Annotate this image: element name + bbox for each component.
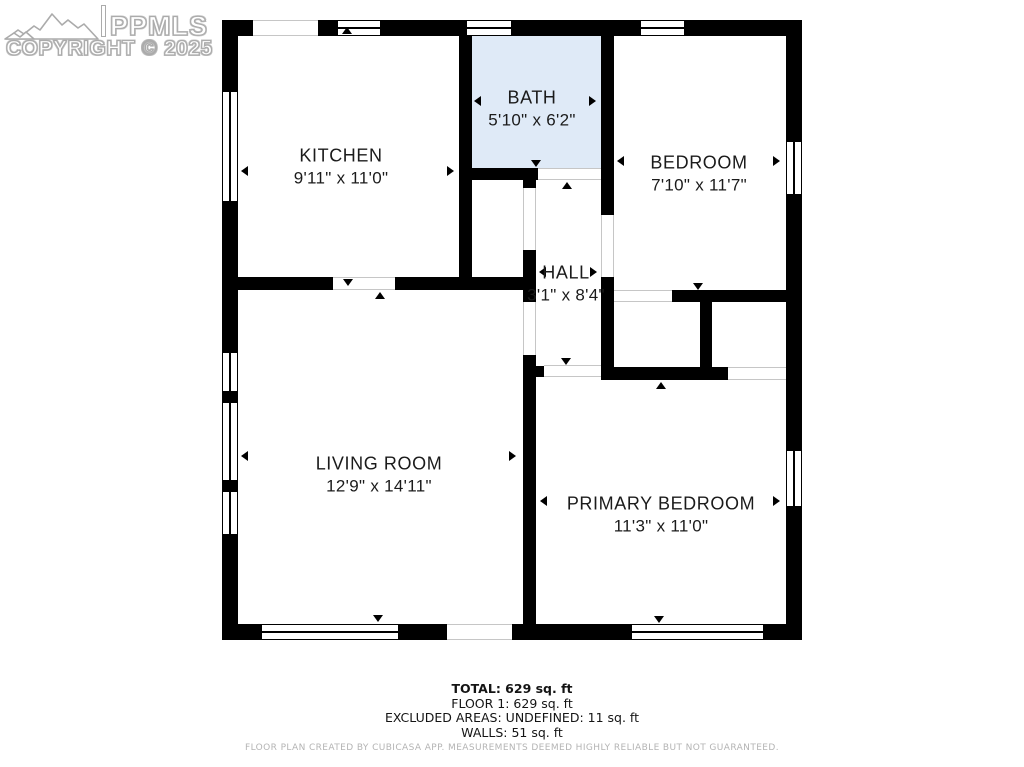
room-dimensions: 11'3" x 11'0" bbox=[567, 517, 755, 537]
door-opening bbox=[253, 20, 318, 36]
wall-segment bbox=[601, 36, 614, 215]
measure-arrow-up bbox=[342, 27, 352, 34]
ppmls-watermark: PPMLS COPYRIGHT © 2025 bbox=[4, 4, 244, 64]
window bbox=[786, 138, 802, 198]
area-summary: TOTAL: 629 sq. ft FLOOR 1: 629 sq. ft EX… bbox=[0, 682, 1024, 740]
room-dimensions: 5'10" x 6'2" bbox=[488, 111, 575, 131]
measure-arrow-left bbox=[241, 451, 248, 461]
wall-segment bbox=[672, 290, 786, 302]
room-label-hall: HALL 3'1" x 8'4" bbox=[527, 263, 605, 306]
room-label-kitchen: KITCHEN 9'11" x 11'0" bbox=[294, 146, 389, 189]
measure-arrow-up bbox=[562, 182, 572, 189]
window bbox=[637, 20, 688, 36]
mountain-range-icon bbox=[4, 6, 100, 40]
measure-arrow-right bbox=[773, 156, 780, 166]
room-name: BATH bbox=[488, 88, 575, 109]
wall-segment bbox=[536, 366, 544, 377]
window-mullion bbox=[222, 480, 238, 492]
room-name: PRIMARY BEDROOM bbox=[567, 494, 755, 515]
window-mullion bbox=[222, 391, 238, 403]
wall-segment bbox=[688, 20, 802, 36]
wall-segment bbox=[395, 277, 536, 290]
wall-segment bbox=[238, 277, 333, 290]
room-dimensions: 9'11" x 11'0" bbox=[294, 169, 389, 189]
excluded-areas: EXCLUDED AREAS: UNDEFINED: 11 sq. ft bbox=[0, 711, 1024, 726]
measure-arrow-down bbox=[561, 358, 571, 365]
room-label-bedroom: BEDROOM 7'10" x 11'7" bbox=[650, 153, 747, 196]
measure-arrow-right bbox=[773, 496, 780, 506]
door-opening bbox=[523, 188, 536, 250]
disclaimer-text: FLOOR PLAN CREATED BY CUBICASA APP. MEAS… bbox=[0, 743, 1024, 753]
wall-segment bbox=[512, 624, 628, 640]
window bbox=[222, 349, 238, 538]
floor1-area: FLOOR 1: 629 sq. ft bbox=[0, 697, 1024, 712]
door-opening bbox=[538, 168, 601, 180]
room-dimensions: 3'1" x 8'4" bbox=[527, 286, 605, 306]
measure-arrow-down bbox=[343, 279, 353, 286]
wall-segment bbox=[601, 367, 728, 380]
measure-arrow-left bbox=[617, 156, 624, 166]
room-dimensions: 7'10" x 11'7" bbox=[650, 176, 747, 196]
window bbox=[628, 624, 767, 640]
measure-arrow-right bbox=[589, 96, 596, 106]
wall-segment bbox=[222, 624, 258, 640]
measure-arrow-down bbox=[531, 160, 541, 167]
measure-arrow-up bbox=[695, 27, 705, 34]
room-label-bath: BATH 5'10" x 6'2" bbox=[488, 88, 575, 131]
measure-arrow-up bbox=[375, 292, 385, 299]
measure-arrow-up bbox=[531, 27, 541, 34]
wall-segment bbox=[384, 20, 463, 36]
room-label-living-room: LIVING ROOM 12'9" x 14'11" bbox=[316, 454, 443, 497]
copyright-text: COPYRIGHT © 2025 bbox=[6, 37, 213, 61]
measure-arrow-left bbox=[241, 166, 248, 176]
door-opening bbox=[544, 365, 601, 377]
measure-arrow-left bbox=[540, 496, 547, 506]
room-name: KITCHEN bbox=[294, 146, 389, 167]
measure-arrow-up bbox=[656, 382, 666, 389]
floor-plan: KITCHEN 9'11" x 11'0" BATH 5'10" x 6'2" … bbox=[0, 0, 1024, 767]
window bbox=[463, 20, 515, 36]
door-opening bbox=[523, 302, 536, 355]
total-area: TOTAL: 629 sq. ft bbox=[0, 682, 1024, 697]
room-name: BEDROOM bbox=[650, 153, 747, 174]
measure-arrow-down bbox=[373, 615, 383, 622]
door-opening bbox=[447, 624, 512, 640]
wall-segment bbox=[523, 355, 536, 624]
measure-arrow-right bbox=[447, 166, 454, 176]
wall-segment bbox=[459, 36, 472, 290]
walls-area: WALLS: 51 sq. ft bbox=[0, 726, 1024, 741]
measure-arrow-right bbox=[509, 451, 516, 461]
door-opening bbox=[614, 290, 672, 302]
wall-segment bbox=[786, 20, 802, 138]
room-label-primary-bedroom: PRIMARY BEDROOM 11'3" x 11'0" bbox=[567, 494, 755, 537]
wall-segment bbox=[700, 302, 712, 367]
wall-segment bbox=[222, 205, 238, 349]
room-name: LIVING ROOM bbox=[316, 454, 443, 475]
wall-segment bbox=[786, 510, 802, 640]
room-name: HALL bbox=[527, 263, 605, 284]
wall-segment bbox=[318, 20, 334, 36]
measure-arrow-left bbox=[474, 96, 481, 106]
wall-segment bbox=[767, 624, 802, 640]
logo-divider bbox=[101, 5, 106, 37]
wall-segment bbox=[402, 624, 447, 640]
window bbox=[786, 447, 802, 510]
window bbox=[258, 624, 402, 640]
wall-segment bbox=[786, 198, 802, 447]
measure-arrow-down bbox=[693, 283, 703, 290]
door-opening bbox=[728, 367, 786, 380]
window bbox=[222, 88, 238, 205]
wall-segment bbox=[523, 168, 536, 188]
measure-arrow-down bbox=[654, 616, 664, 623]
room-dimensions: 12'9" x 14'11" bbox=[316, 477, 443, 497]
